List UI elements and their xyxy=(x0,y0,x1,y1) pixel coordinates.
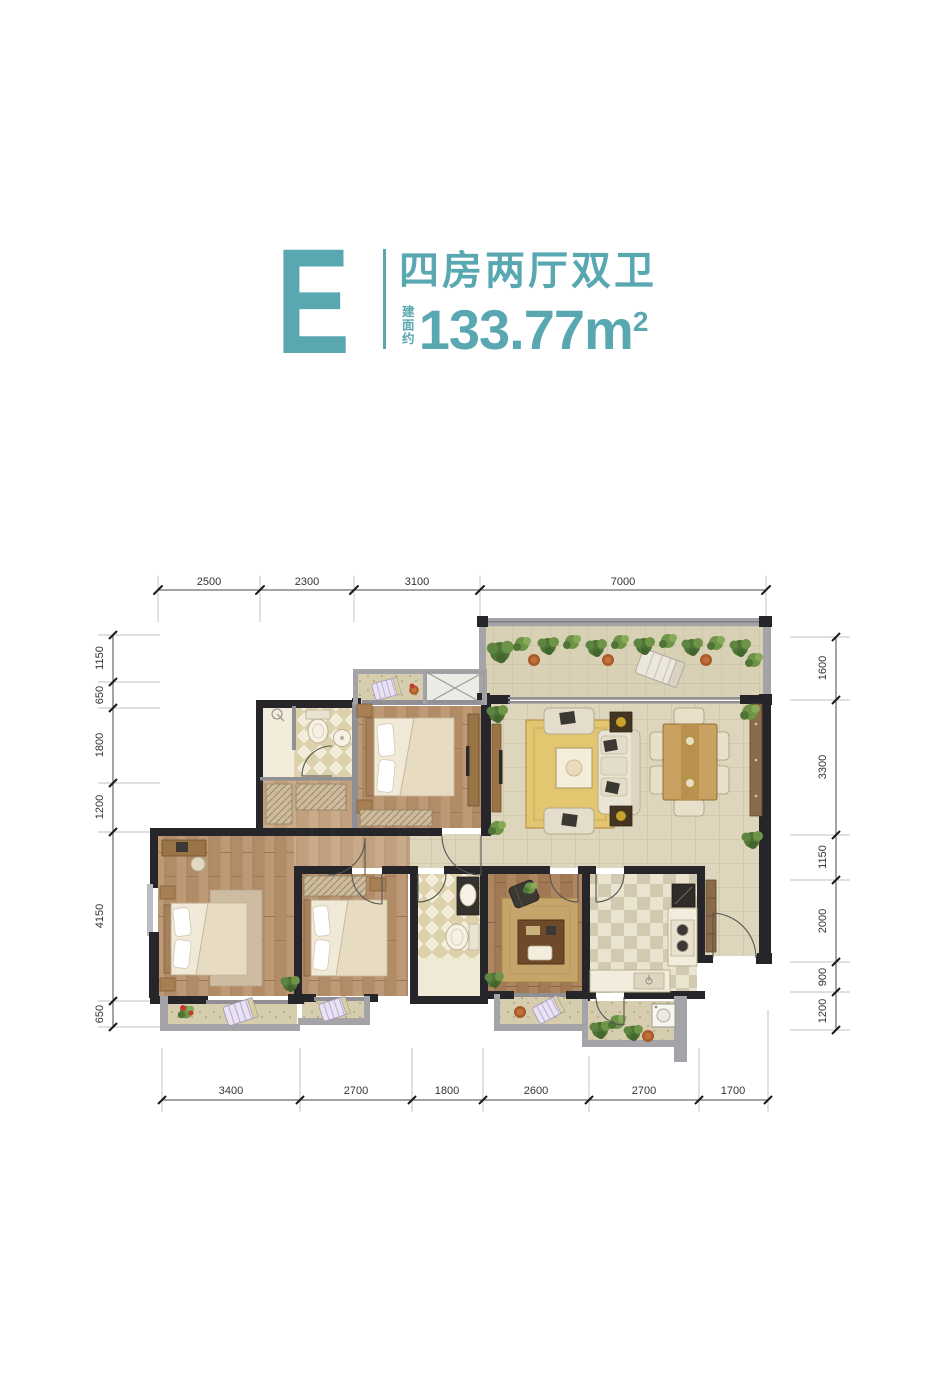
dim-label-left-2: 1800 xyxy=(94,733,106,757)
washing-machine xyxy=(652,1004,675,1027)
dim-label-right-2: 1150 xyxy=(817,845,829,869)
dim-label-right-1: 3300 xyxy=(817,755,829,779)
shoe-cabinet xyxy=(706,880,716,952)
floorplan-page: E 四房两厅双卫 建面约 133.77m2 xyxy=(0,0,933,1400)
dim-label-top-2: 3100 xyxy=(405,576,429,588)
dim-label-bottom-1: 2700 xyxy=(344,1085,368,1097)
sofa xyxy=(598,730,640,814)
bedroom3-nightstand xyxy=(370,878,386,891)
tv-cabinet xyxy=(492,724,503,812)
bedroom3-bed xyxy=(304,900,387,976)
dim-label-top-3: 7000 xyxy=(611,576,635,588)
study-desk xyxy=(518,920,564,964)
bedroom3-wardrobe xyxy=(304,876,366,896)
bathroom2-toilet xyxy=(446,924,479,950)
kitchen-counter-right xyxy=(668,908,697,966)
bedroom2-wardrobe xyxy=(360,810,432,826)
dim-label-right-5: 1200 xyxy=(817,999,829,1023)
bathroom2-vanity xyxy=(457,877,479,915)
armchair-bottom xyxy=(544,808,594,834)
dim-label-top-0: 2500 xyxy=(197,576,221,588)
master-bed xyxy=(164,890,262,986)
hallway-floor xyxy=(410,834,705,868)
bedroom2-bed xyxy=(366,718,454,796)
dimension-chain-right: 1600 3300 1150 2000 900 1200 xyxy=(790,633,850,1034)
dim-label-bottom-4: 2700 xyxy=(632,1085,656,1097)
dim-label-left-5: 650 xyxy=(94,1005,106,1023)
dim-label-bottom-5: 1700 xyxy=(721,1085,745,1097)
floorplan-drawing: 2500 2300 3100 7000 3400 2700 1800 2600 xyxy=(0,0,933,1400)
master-hall-floor xyxy=(294,836,410,868)
dim-label-right-3: 2000 xyxy=(817,909,829,933)
dim-label-top-1: 2300 xyxy=(295,576,319,588)
dining-sideboard xyxy=(750,704,762,816)
bedroom2-tv-cabinet xyxy=(466,714,479,806)
shower-floor xyxy=(262,706,294,778)
dim-label-left-0: 1150 xyxy=(94,646,106,670)
kitchen-counter-bottom xyxy=(590,970,670,992)
dimension-chain-top: 2500 2300 3100 7000 xyxy=(154,576,770,622)
bedroom2-nightstand-top xyxy=(357,704,372,717)
dim-label-bottom-0: 3400 xyxy=(219,1085,243,1097)
master-nightstand-top xyxy=(160,886,175,899)
master-nightstand-bottom xyxy=(160,978,175,991)
dim-label-left-1: 650 xyxy=(94,686,106,704)
coffee-table xyxy=(556,748,592,788)
bathroom2-wet-floor xyxy=(416,958,480,996)
dim-label-right-4: 900 xyxy=(817,968,829,986)
bathroom1-toilet xyxy=(306,710,330,743)
bathroom1-sink xyxy=(334,730,351,747)
side-table-lamp-top xyxy=(610,712,632,732)
closet-wardrobe-left xyxy=(266,784,292,824)
kitchen-fridge xyxy=(672,884,695,907)
dim-label-right-0: 1600 xyxy=(817,656,829,680)
dim-label-bottom-3: 2600 xyxy=(524,1085,548,1097)
armchair-top xyxy=(544,708,594,734)
closet-wardrobe-right xyxy=(296,784,346,810)
dim-label-left-3: 1200 xyxy=(94,795,106,819)
side-table-lamp-bottom xyxy=(610,806,632,826)
dim-label-bottom-2: 1800 xyxy=(435,1085,459,1097)
dim-label-left-4: 4150 xyxy=(94,904,106,928)
